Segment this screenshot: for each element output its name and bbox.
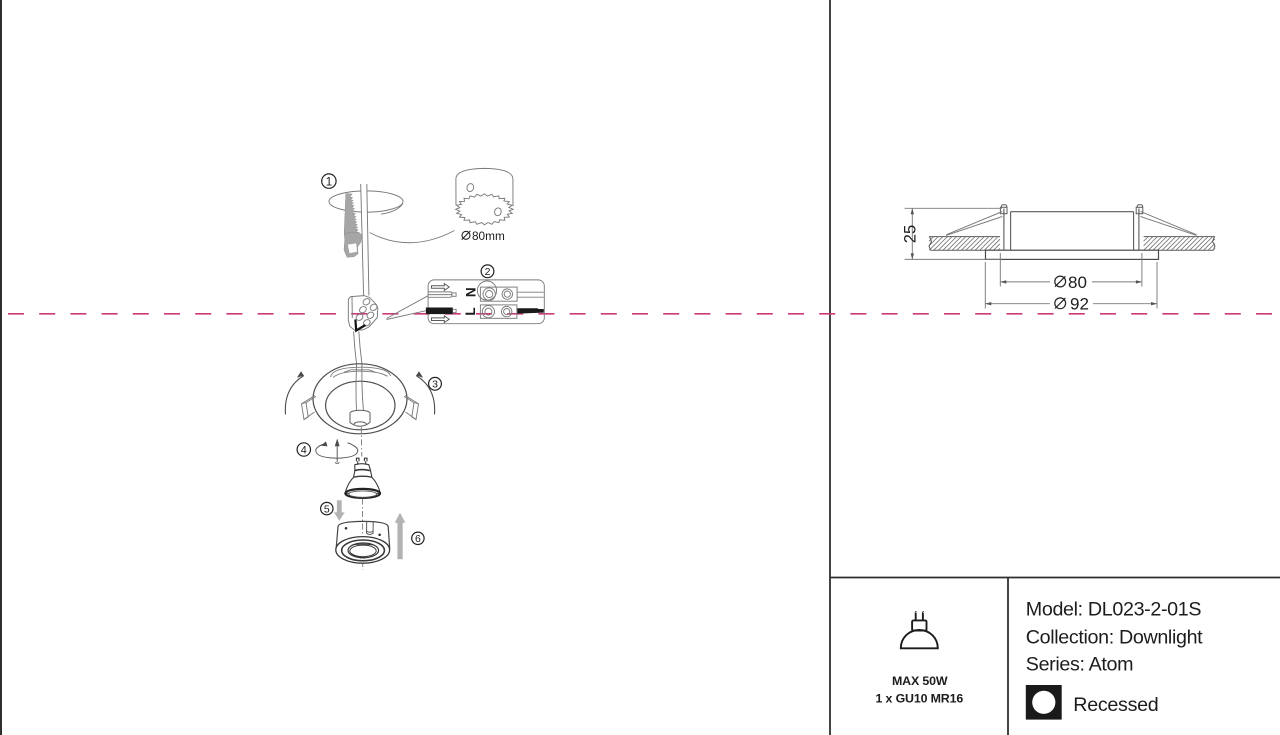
svg-text:1: 1 (326, 176, 332, 188)
svg-text:MAX 50W: MAX 50W (892, 674, 948, 688)
svg-text:4: 4 (301, 445, 307, 457)
svg-text:80: 80 (1068, 273, 1087, 292)
svg-text:25: 25 (902, 225, 920, 243)
svg-text:3: 3 (432, 379, 438, 391)
svg-text:Model: DL023-2-01S: Model: DL023-2-01S (1026, 599, 1202, 621)
svg-text:Collection: Downlight: Collection: Downlight (1026, 626, 1203, 648)
svg-text:80mm: 80mm (472, 229, 505, 243)
svg-text:Recessed: Recessed (1073, 694, 1158, 716)
svg-text:N: N (464, 287, 479, 297)
svg-text:6: 6 (415, 533, 421, 545)
svg-text:5: 5 (324, 503, 330, 515)
svg-text:2: 2 (485, 266, 491, 278)
svg-text:1 x GU10 MR16: 1 x GU10 MR16 (876, 692, 964, 706)
svg-text:Series: Atom: Series: Atom (1026, 654, 1133, 676)
svg-text:L: L (463, 307, 478, 315)
svg-text:92: 92 (1070, 295, 1089, 314)
